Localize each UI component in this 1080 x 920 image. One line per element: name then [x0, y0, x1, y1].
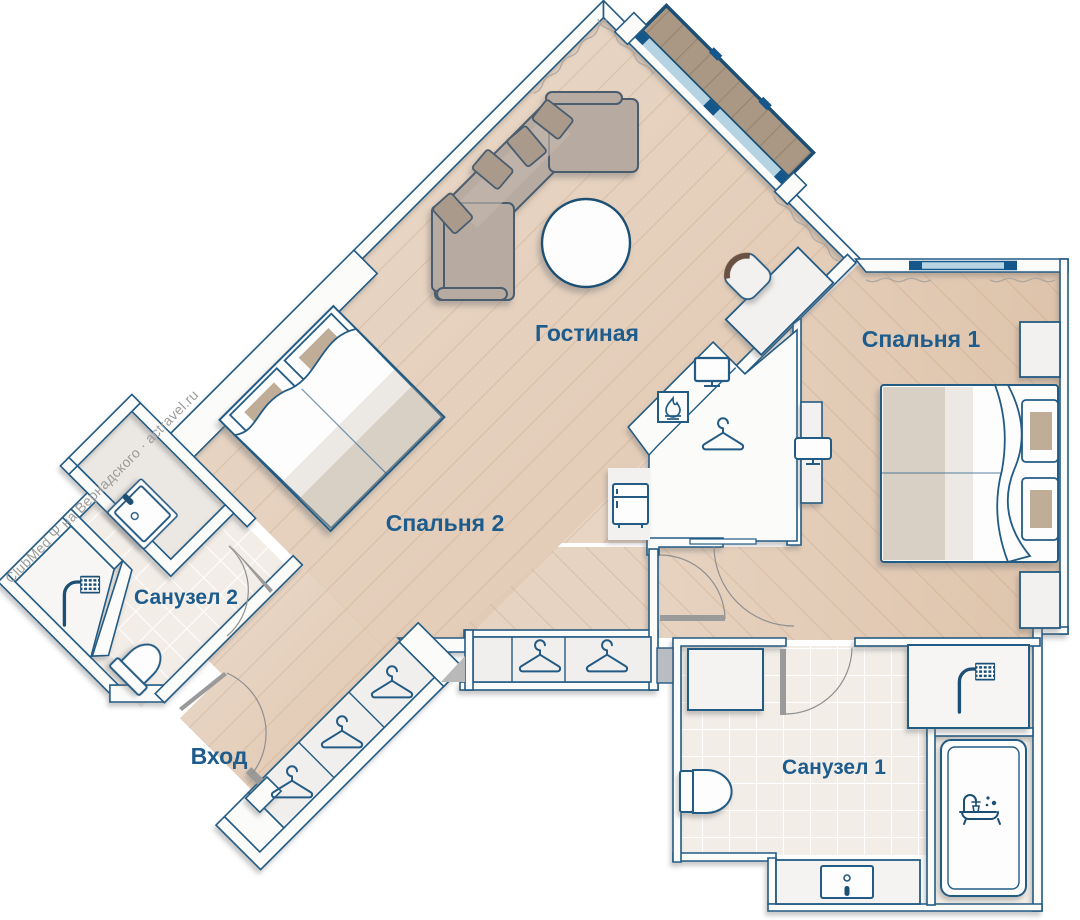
svg-text:Санузел 1: Санузел 1	[782, 756, 886, 779]
svg-text:Санузел 2: Санузел 2	[134, 586, 238, 609]
svg-text:Гостиная: Гостиная	[535, 320, 639, 346]
svg-text:Спальня 1: Спальня 1	[862, 326, 981, 352]
svg-text:Спальня 2: Спальня 2	[386, 510, 505, 536]
svg-text:Вход: Вход	[191, 743, 248, 769]
